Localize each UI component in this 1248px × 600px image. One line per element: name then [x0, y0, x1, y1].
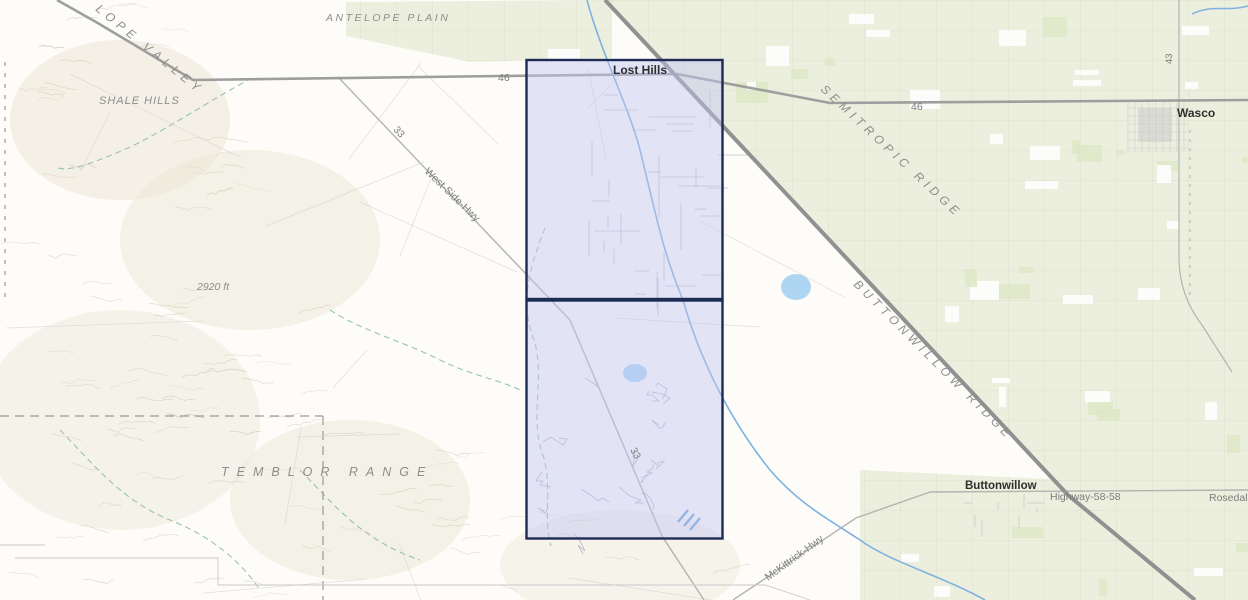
label-antelope-plain: ANTELOPE PLAIN [325, 12, 450, 24]
selection-rect-north[interactable] [527, 60, 723, 299]
label-rosedale: Rosedale [1209, 492, 1248, 504]
label-route43: 43 [1164, 53, 1175, 64]
pond-large [781, 274, 811, 300]
label-lost-hills: Lost Hills [613, 63, 667, 77]
label-elevation: 2920 ft [196, 281, 230, 293]
label-highway-58: Highway-58-58 [1050, 491, 1121, 503]
label-hwy46-west: 46 [498, 72, 510, 84]
label-hwy46-east: 46 [911, 101, 923, 113]
selection-rect-south[interactable] [527, 301, 723, 539]
label-buttonwillow: Buttonwillow [965, 480, 1037, 492]
map-canvas[interactable]: ANTELOPE PLAIN LOPE VALLEY SHALE HILLS T… [0, 0, 1248, 600]
label-shale-hills: SHALE HILLS [99, 95, 180, 107]
label-wasco: Wasco [1177, 106, 1215, 120]
label-temblor-range: TEMBLOR RANGE [221, 465, 433, 479]
topo-map: ANTELOPE PLAIN LOPE VALLEY SHALE HILLS T… [0, 0, 1248, 600]
